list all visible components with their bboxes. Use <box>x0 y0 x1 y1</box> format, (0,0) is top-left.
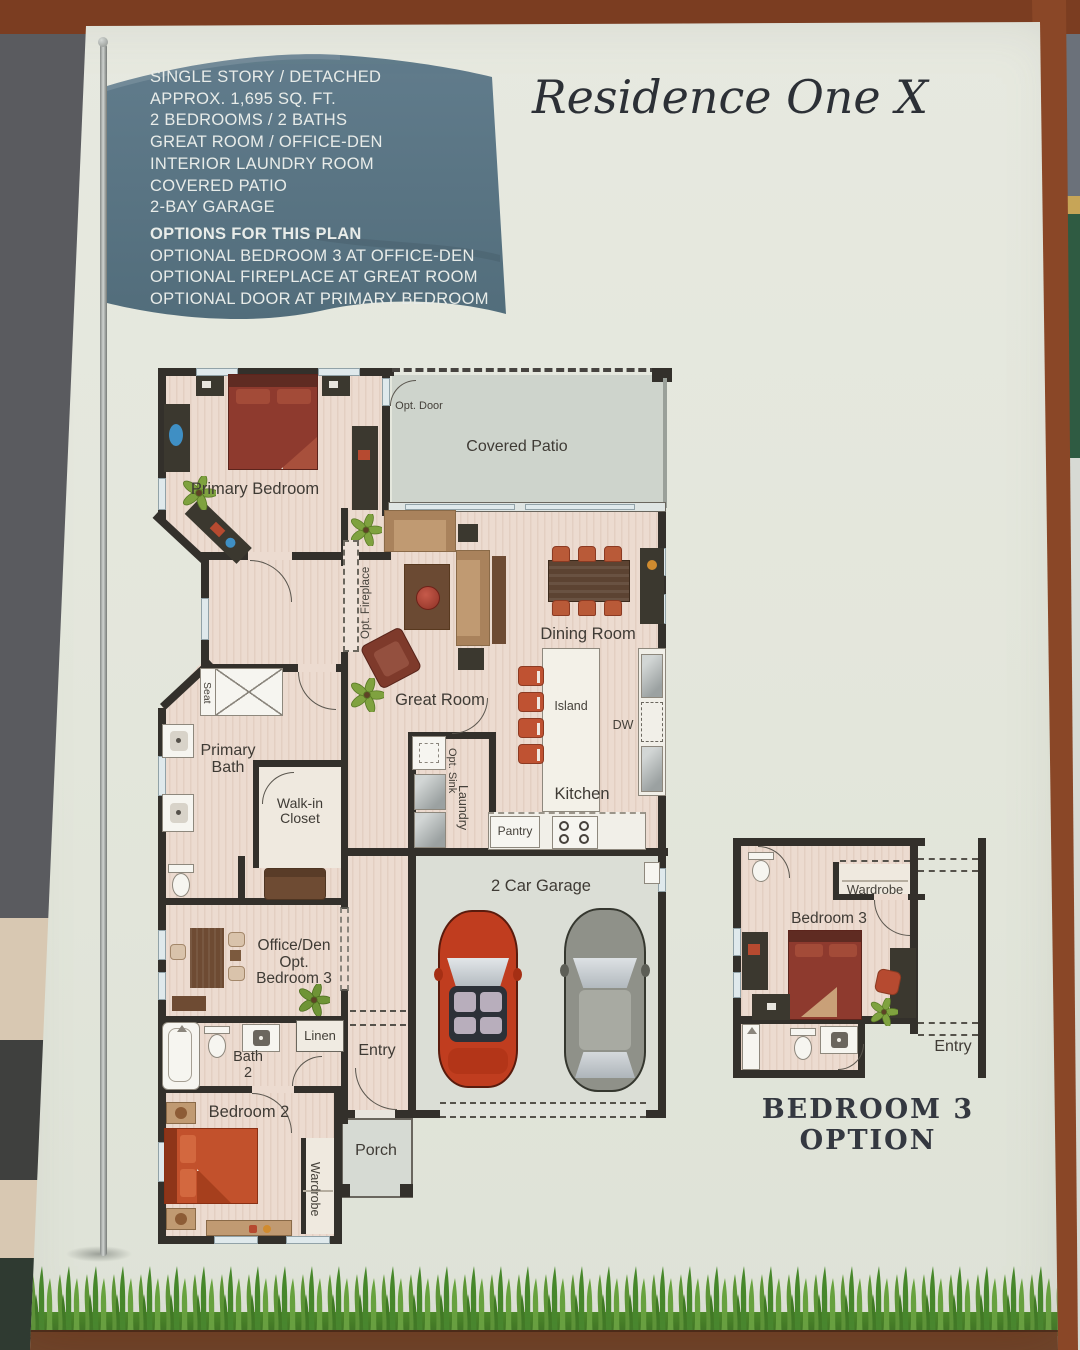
island-stool <box>518 744 544 764</box>
dresser <box>164 404 190 472</box>
room-label-primary-bath: Primary Bath <box>186 742 270 777</box>
washer <box>414 774 446 810</box>
inset-sink <box>820 1026 858 1054</box>
label-island: Island <box>551 699 591 713</box>
label-opt-fireplace: Opt. Fireplace <box>360 554 372 652</box>
flag-feature-line: SINGLE STORY / DETACHED <box>150 67 495 89</box>
dresser <box>206 1220 292 1236</box>
room-label-garage: 2 Car Garage <box>482 878 600 896</box>
room-label-bedroom-2: Bedroom 2 <box>202 1104 296 1122</box>
inset-desk-chair <box>874 968 902 996</box>
desk <box>190 928 224 988</box>
label-opt-sink: Opt. Sink <box>446 738 458 804</box>
dining-chair <box>578 546 596 562</box>
nightstand <box>166 1102 196 1124</box>
bathtub <box>162 1022 200 1090</box>
optional-fireplace <box>343 540 359 652</box>
shower <box>215 668 283 716</box>
dining-table <box>548 560 630 602</box>
water-heater <box>644 862 660 884</box>
garage-door <box>440 1102 646 1118</box>
entry-cased-opening <box>350 1010 406 1026</box>
dryer <box>414 812 446 848</box>
inset-shower <box>742 1024 760 1070</box>
inset-label-bedroom3: Bedroom 3 <box>786 911 872 928</box>
room-label-great-room: Great Room <box>388 692 492 710</box>
side-table <box>458 524 478 542</box>
dining-chair <box>604 600 622 616</box>
flag-feature-line: GREAT ROOM / OFFICE-DEN <box>150 132 495 154</box>
plant-icon <box>870 998 898 1026</box>
ottoman <box>458 648 484 670</box>
buffet-cabinet <box>640 548 664 624</box>
flag-feature-line: COVERED PATIO <box>150 176 495 198</box>
refrigerator <box>641 746 663 792</box>
flag-option-line: OPTIONAL DOOR AT PRIMARY BEDROOM <box>150 289 495 311</box>
bedroom2-bed <box>164 1128 258 1204</box>
island-stool <box>518 718 544 738</box>
toilet-bowl <box>208 1034 226 1058</box>
toilet <box>168 864 194 873</box>
label-linen: Linen <box>300 1028 340 1043</box>
dining-chair <box>552 546 570 562</box>
console-table <box>492 556 506 644</box>
room-label-walkin-closet: Walk-in Closet <box>266 796 334 826</box>
dining-chair <box>552 600 570 616</box>
porch-post <box>337 1184 350 1197</box>
island-stool <box>518 692 544 712</box>
room-label-entry: Entry <box>352 1042 402 1059</box>
inset-toilet-bowl <box>794 1036 812 1060</box>
label-opt-door: Opt. Door <box>392 400 446 412</box>
inset-nightstand <box>752 994 790 1020</box>
label-dw: DW <box>608 718 638 732</box>
nightstand <box>166 1208 196 1230</box>
inset-bed <box>788 930 862 1020</box>
dining-chair <box>604 546 622 562</box>
brochure-page: SINGLE STORY / DETACHED APPROX. 1,695 SQ… <box>0 0 1080 1350</box>
room-label-primary-bedroom: Primary Bedroom <box>178 481 332 499</box>
office-chair <box>170 944 186 960</box>
plant-icon <box>298 984 330 1016</box>
area-rug <box>404 564 450 630</box>
kitchen-sink <box>641 654 663 698</box>
office-couch <box>264 868 326 900</box>
flag-feature-line: 2-BAY GARAGE <box>150 197 495 219</box>
inset-wardrobe-dashed <box>840 860 910 864</box>
room-label-bath-2: Bath 2 <box>226 1050 270 1081</box>
porch-post <box>400 1184 413 1197</box>
patio-dashed-edge <box>392 368 658 374</box>
toilet <box>204 1026 230 1034</box>
inset-opening-top <box>918 858 978 872</box>
stove <box>552 816 598 849</box>
island-stool <box>518 666 544 686</box>
flag-option-line: OPTIONAL BEDROOM 3 AT OFFICE-DEN <box>150 246 495 268</box>
vanity-sink <box>242 1024 280 1052</box>
inset-label-wardrobe: Wardrobe <box>838 882 912 897</box>
primary-bed <box>228 374 318 470</box>
red-car-illustration <box>438 910 518 1088</box>
room-label-covered-patio: Covered Patio <box>455 438 579 455</box>
optional-sink <box>412 736 446 770</box>
room-label-office-den: Office/Den Opt. Bedroom 3 <box>238 938 350 988</box>
inset-opening-bottom <box>918 1022 978 1036</box>
inset-label-entry: Entry <box>926 1038 980 1055</box>
room-label-porch: Porch <box>348 1142 404 1159</box>
inset-toilet <box>748 852 774 860</box>
toilet-bowl <box>172 873 190 897</box>
tall-cabinet <box>352 426 378 510</box>
room-label-dining-room: Dining Room <box>532 626 644 644</box>
flag-feature-line: 2 BEDROOMS / 2 BATHS <box>150 110 495 132</box>
label-wardrobe: Wardrobe <box>308 1146 322 1232</box>
opt-door-gap <box>382 378 390 406</box>
inset-toilet <box>790 1028 816 1036</box>
flag-options-heading: OPTIONS FOR THIS PLAN <box>150 224 495 246</box>
inset-caption: BEDROOM 3 OPTION <box>718 1094 1018 1156</box>
label-seat: Seat <box>201 672 213 714</box>
flag-feature-line: INTERIOR LAUNDRY ROOM <box>150 154 495 176</box>
nightstand <box>322 376 350 396</box>
sofa <box>456 550 490 646</box>
credenza <box>172 996 206 1011</box>
room-label-kitchen: Kitchen <box>546 786 618 804</box>
gray-car-illustration <box>564 908 646 1092</box>
flag-option-line: OPTIONAL FIREPLACE AT GREAT ROOM <box>150 267 495 289</box>
label-laundry: Laundry <box>456 768 470 848</box>
flag-feature-line: APPROX. 1,695 SQ. FT. <box>150 89 495 111</box>
inset-dresser <box>742 932 768 990</box>
brochure-photo: SINGLE STORY / DETACHED APPROX. 1,695 SQ… <box>0 0 1080 1350</box>
flag-feature-list: SINGLE STORY / DETACHED APPROX. 1,695 SQ… <box>150 67 495 311</box>
page-title: Residence One X <box>515 70 945 124</box>
bath-sink <box>162 794 194 832</box>
label-pantry: Pantry <box>492 824 538 838</box>
dining-chair <box>578 600 596 616</box>
nightstand <box>196 376 224 396</box>
sofa <box>384 510 456 552</box>
inset-toilet-bowl <box>752 860 770 882</box>
